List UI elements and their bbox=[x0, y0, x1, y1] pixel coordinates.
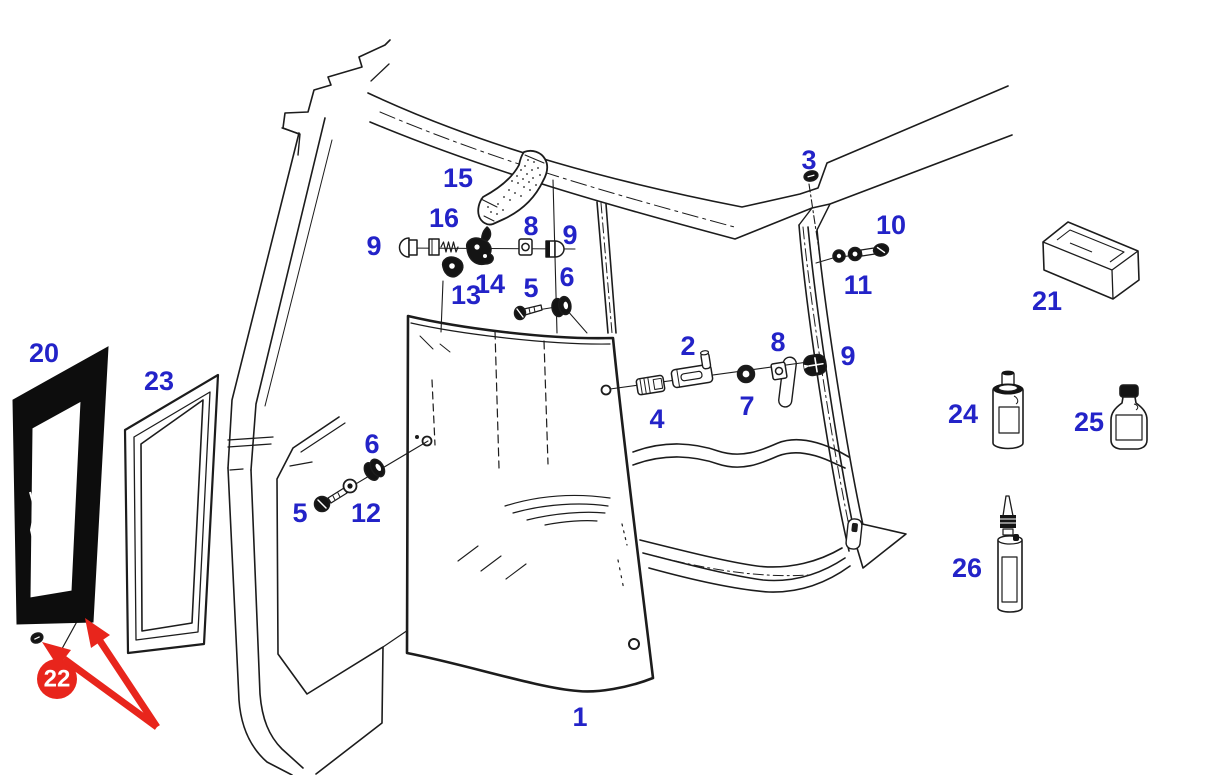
parts-diagram: 22 1234556678899910111213141516202123242… bbox=[0, 0, 1214, 775]
screw-5-upper-shank bbox=[524, 305, 542, 315]
part-label-3-2: 3 bbox=[801, 145, 816, 175]
part-label-14-18: 14 bbox=[475, 269, 505, 299]
part-label-8-10: 8 bbox=[770, 327, 785, 357]
bolt-16-spring bbox=[441, 242, 458, 252]
seal-frame-20 bbox=[13, 347, 108, 624]
bottle-cap bbox=[1120, 385, 1138, 397]
part-label-2-1: 2 bbox=[680, 331, 695, 361]
glass-hole-top bbox=[602, 386, 611, 395]
bolt-10-head bbox=[873, 243, 890, 257]
bracket-14 bbox=[467, 238, 493, 264]
part-label-9-13: 9 bbox=[840, 341, 855, 371]
part-label-8-9: 8 bbox=[523, 211, 538, 241]
spacer-4 bbox=[636, 375, 665, 395]
cartridge-nozzle bbox=[1003, 496, 1013, 516]
grommet-6-upper bbox=[551, 296, 572, 317]
nut-8-right bbox=[771, 362, 787, 380]
glass-hole-bottom bbox=[629, 639, 639, 649]
window-glass bbox=[407, 316, 653, 691]
part-label-20-21: 20 bbox=[29, 338, 59, 368]
cartridge-26 bbox=[998, 496, 1022, 612]
highlight-label: 22 bbox=[44, 666, 71, 693]
bottle-25 bbox=[1111, 385, 1147, 449]
part-label-12-16: 12 bbox=[351, 498, 381, 528]
spray-can-24 bbox=[993, 371, 1023, 449]
part-label-4-3: 4 bbox=[649, 404, 664, 434]
part-label-11-15: 11 bbox=[844, 270, 873, 300]
door-belt-line bbox=[633, 440, 849, 457]
bolt-10-shank bbox=[861, 248, 875, 256]
part-label-6-7: 6 bbox=[364, 429, 379, 459]
glass-outline bbox=[407, 316, 653, 691]
cap-nut-9-right bbox=[803, 353, 828, 376]
axis-10-11 bbox=[833, 243, 889, 262]
part-label-6-6: 6 bbox=[559, 262, 574, 292]
part-label-10-14: 10 bbox=[876, 210, 906, 240]
part-label-23-23: 23 bbox=[144, 366, 174, 396]
part-label-15-19: 15 bbox=[443, 163, 473, 193]
part-label-7-8: 7 bbox=[739, 391, 754, 421]
part-label-24-24: 24 bbox=[948, 399, 978, 429]
part-label-5-5: 5 bbox=[292, 498, 307, 528]
window-frame-23 bbox=[125, 375, 218, 653]
highlight-arrow-shaft-2 bbox=[64, 659, 157, 727]
part-label-25-25: 25 bbox=[1074, 407, 1104, 437]
lower-door-frame bbox=[228, 468, 292, 775]
roof-corner-stub bbox=[283, 40, 390, 134]
cap-nut-9-left bbox=[400, 238, 410, 257]
bolt-16-head bbox=[429, 239, 439, 255]
part-label-26-26: 26 bbox=[952, 553, 982, 583]
part-label-9-12: 9 bbox=[562, 220, 577, 250]
part-label-21-22: 21 bbox=[1032, 286, 1062, 316]
part-label-1-0: 1 bbox=[572, 702, 587, 732]
part-label-9-11: 9 bbox=[366, 231, 381, 261]
a-pillar bbox=[228, 133, 299, 468]
part-label-5-4: 5 bbox=[523, 273, 538, 303]
highlight-arrow-head-1 bbox=[85, 618, 110, 648]
door-frame-sill bbox=[640, 540, 842, 567]
part-label-16-20: 16 bbox=[429, 203, 459, 233]
